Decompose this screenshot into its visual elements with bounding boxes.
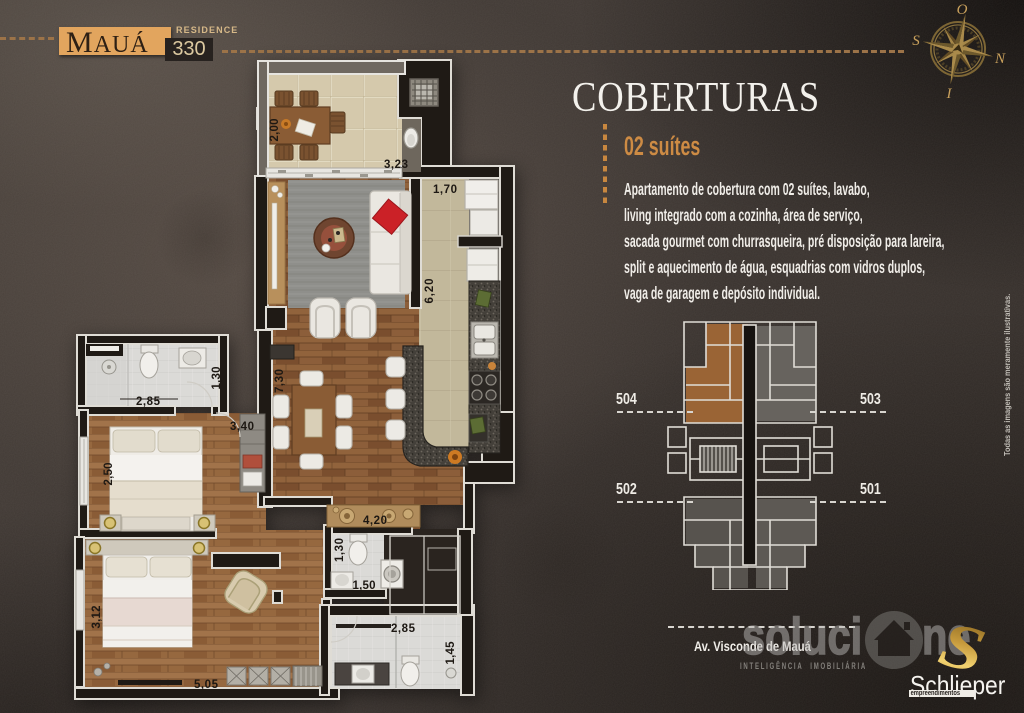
- svg-text:1,30: 1,30: [211, 367, 223, 390]
- svg-text:6,20: 6,20: [424, 279, 436, 304]
- svg-text:1,45: 1,45: [445, 641, 457, 665]
- svg-text:3,40: 3,40: [230, 421, 254, 433]
- svg-text:N: N: [994, 51, 1006, 67]
- svg-text:2,00: 2,00: [269, 119, 281, 142]
- svg-text:1,50: 1,50: [353, 580, 376, 592]
- svg-text:2,85: 2,85: [391, 623, 416, 635]
- svg-text:5,05: 5,05: [194, 679, 219, 691]
- svg-text:2,85: 2,85: [136, 396, 161, 408]
- svg-text:2,50: 2,50: [103, 463, 115, 486]
- svg-text:S: S: [912, 33, 920, 49]
- svg-text:3,12: 3,12: [91, 606, 103, 629]
- svg-text:I: I: [946, 86, 953, 102]
- svg-text:7,30: 7,30: [274, 369, 286, 393]
- svg-text:3,23: 3,23: [384, 159, 408, 171]
- svg-text:O: O: [957, 2, 968, 18]
- svg-text:1,70: 1,70: [433, 184, 457, 196]
- svg-text:4,20: 4,20: [363, 515, 387, 527]
- svg-text:1,30: 1,30: [334, 538, 346, 562]
